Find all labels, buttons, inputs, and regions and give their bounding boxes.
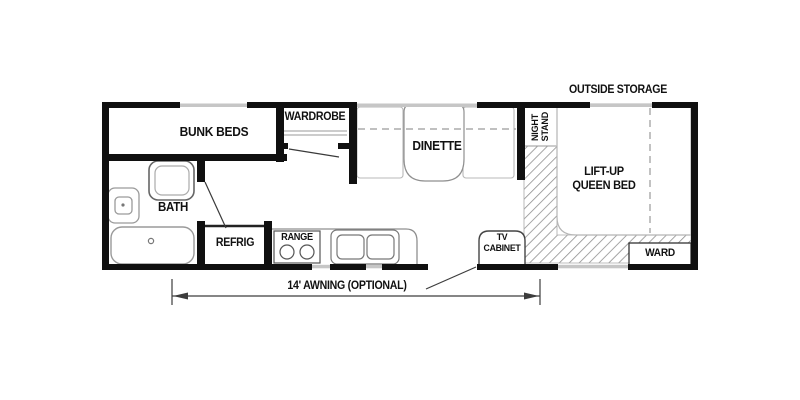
tv-cabinet-label-line1: TV — [497, 233, 508, 243]
queen-bed-label-line2: QUEEN BED — [572, 179, 635, 191]
refrigerator-label: REFRIG — [216, 238, 254, 250]
shower — [149, 161, 194, 200]
bath-label: BATH — [158, 201, 188, 214]
bunk-beds-label: BUNK BEDS — [180, 125, 249, 138]
wardrobe-shelf — [284, 131, 347, 135]
wardrobe-door-swing — [289, 149, 339, 157]
night-stand-label-line1: NIGHT — [531, 114, 540, 141]
outside-storage-label: OUTSIDE STORAGE — [569, 85, 667, 97]
awning-dimension-label: 14' AWNING (OPTIONAL) — [287, 281, 406, 293]
floorplan-image: BUNK BEDS WARDROBE DINETTE BATH REFRIG R… — [0, 0, 800, 400]
bathtub — [111, 227, 194, 264]
queen-bed-label-line1: LIFT-UP — [584, 165, 624, 177]
dinette-label: DINETTE — [412, 139, 461, 152]
wardrobe-label: WARDROBE — [285, 112, 346, 124]
queen-bed-platform — [557, 104, 691, 235]
range-label: RANGE — [281, 233, 313, 243]
toilet — [108, 188, 139, 223]
kitchen-sink — [331, 230, 399, 264]
ward-label: WARD — [645, 248, 675, 259]
floorplan-drawing — [0, 0, 800, 400]
night-stand-label-line2: STAND — [541, 112, 550, 141]
tv-cabinet-label-line2: CABINET — [484, 244, 521, 254]
bath-door-swing — [205, 182, 226, 228]
night-stand-label: NIGHT STAND — [524, 107, 557, 147]
